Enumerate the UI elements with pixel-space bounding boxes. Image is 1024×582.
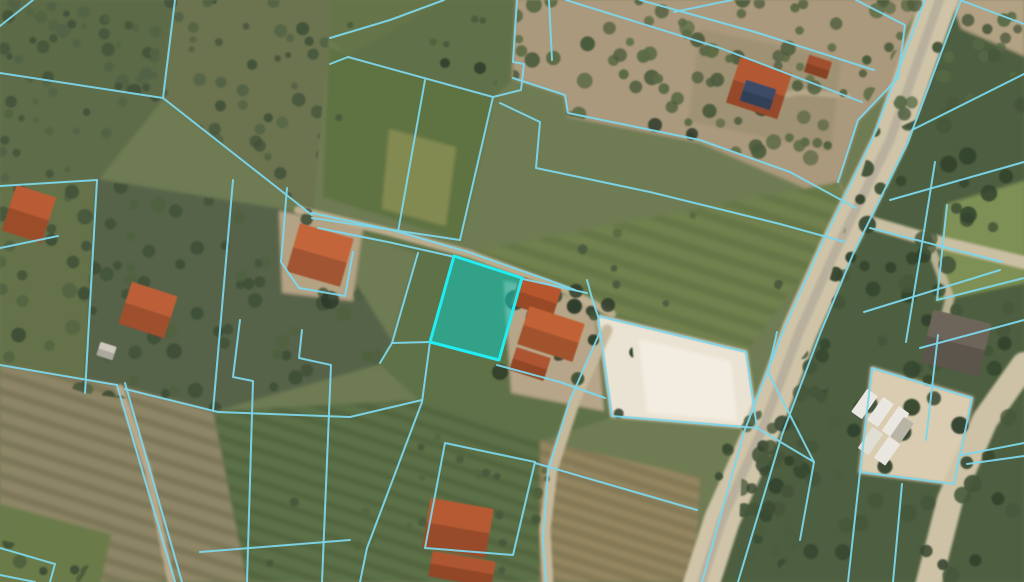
tree-shadow-blob xyxy=(601,298,615,312)
tree-shadow-blob xyxy=(474,62,486,74)
tree-shadow-blob xyxy=(440,58,450,68)
terrain-patch-p-yellow xyxy=(383,130,455,225)
parcel-boundary-line xyxy=(392,342,430,343)
terrain-patch-bc-fields xyxy=(213,400,545,582)
map-viewport xyxy=(0,0,1024,582)
cadastral-map-canvas[interactable] xyxy=(0,0,1024,582)
